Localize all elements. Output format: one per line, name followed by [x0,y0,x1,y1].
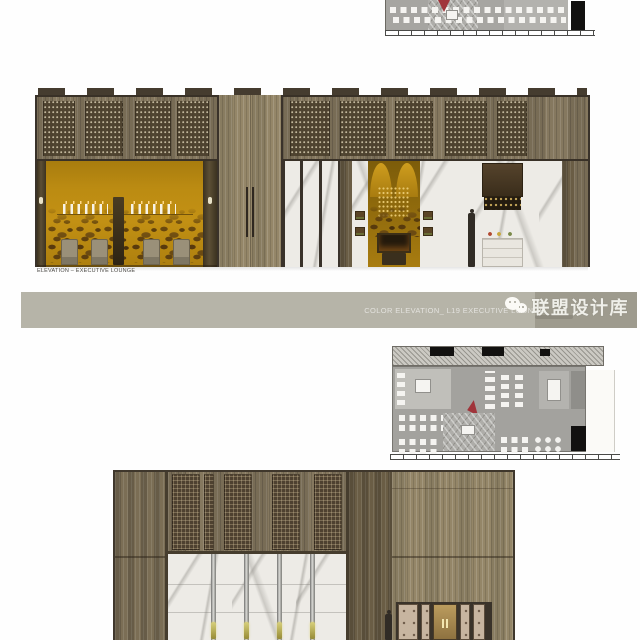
plan-entry-arrow [438,0,450,12]
plan-sofa-column [485,371,495,409]
plan-banquette [515,373,523,407]
plan-core-block [571,426,586,451]
lounge-chair [173,239,190,265]
marble-feature-wall [168,554,346,640]
person-silhouette [466,209,477,267]
display-niche [423,211,433,220]
lattice-screen-panel [314,474,342,550]
panel-frame [283,161,285,267]
fireplace [377,233,411,253]
plan-grid-line [390,454,620,460]
plan-furniture-row [390,7,566,13]
display-niche [423,227,433,236]
wood-section-right [392,472,513,640]
gold-alcove [368,161,420,267]
lounge-chair [143,239,160,265]
panel-seam [392,488,513,489]
plan-sofa-row [501,447,529,453]
panel-frame [300,161,303,267]
candle-row [131,201,176,214]
plan-terrace [586,370,615,452]
wechat-logo-icon [505,297,529,317]
plan-floor-light-zone [504,0,568,30]
perforated-panel [340,101,386,156]
plan-banquette [501,373,509,407]
perforated-panel [497,101,527,156]
marble-joint [168,612,346,613]
mullion-lamp [211,622,216,639]
panel-seam [115,556,165,558]
perforated-panel [135,101,171,156]
lounge-chair [61,239,78,265]
plan-sofa-row [501,437,529,443]
plan-shaft-block [430,347,454,356]
plan-shaft-block [482,347,504,356]
watermark-subtext-smudge [535,315,573,319]
door-handle [246,187,248,237]
candle-ledge [57,214,193,215]
candle-row [63,201,108,214]
quilted-panel [398,604,418,640]
presentation-sheet: ELEVATION – EXECUTIVE LOUNGE COLOR ELEVA… [0,0,640,640]
plan-core-block [571,1,585,30]
coffee-table-silhouette [382,253,406,265]
plan-sofa-row [399,439,439,445]
panel-frame [319,161,322,267]
plan-table [461,425,475,435]
perforated-panel [395,101,433,156]
wood-double-door [217,95,283,267]
plan-floor [385,0,568,30]
lattice-screen-panel [224,474,252,550]
display-niche [355,211,365,220]
perforated-panel [445,101,487,156]
wall-sconce [39,197,43,204]
gold-display-cabinet [433,604,457,640]
door-handle [252,187,254,237]
feature-bay [165,472,349,640]
floor-plan-middle [390,346,620,462]
wood-pier [340,161,352,267]
perforated-panel [290,101,330,156]
lounge-chair [91,239,108,265]
door-split-line [250,95,251,267]
elevation-executive-lounge [35,88,590,267]
plan-grid-line [385,30,595,36]
quilted-panel [473,604,485,640]
marble-bar-section [283,161,590,267]
mullion-lamp [310,622,315,639]
counter-items [485,231,521,238]
plan-round-tables [533,435,563,453]
perforated-panel [43,101,75,156]
mullion-lamp [277,622,282,639]
plan-floor [392,366,586,452]
bar-hood [482,163,523,197]
mullion-lamp [244,622,249,639]
wine-rack [484,197,521,210]
quilted-panel [460,604,470,640]
plan-shaft-block [540,349,550,356]
perforated-panel [85,101,123,156]
center-console [113,197,124,265]
lattice-screen-panel [172,474,200,550]
display-niche [355,227,365,236]
marble-joint [168,584,346,585]
ceiling-coffer-tabs [38,88,587,95]
elevation-label: ELEVATION – EXECUTIVE LOUNGE [37,268,135,274]
lounge-gold-wall [37,161,217,267]
floor-plan-fragment-top [385,0,600,38]
plan-seat-row [397,371,405,405]
wood-pier [562,161,574,267]
quilted-panel [421,604,430,640]
plan-large-table [547,379,561,401]
plan-zone-dark [571,371,585,409]
lattice-screen-panel [204,474,214,550]
right-pilaster [203,161,217,267]
wechat-bubble-small [516,303,527,313]
panel-seam [392,556,513,558]
title-banner: COLOR ELEVATION_ L19 EXECUTIVE LOUNGE 联盟… [21,292,637,328]
elevation-bottom [113,470,515,640]
left-pilaster [37,161,46,267]
bar-counter [482,238,523,267]
wall-sconce [208,197,212,204]
elevation-edge [35,95,37,267]
elevation-edge [588,95,590,267]
perforated-panel [177,101,209,156]
plan-table [415,379,431,393]
lattice-screen-panel [272,474,300,550]
plan-furniture-row [393,17,566,23]
person-silhouette [383,610,394,640]
